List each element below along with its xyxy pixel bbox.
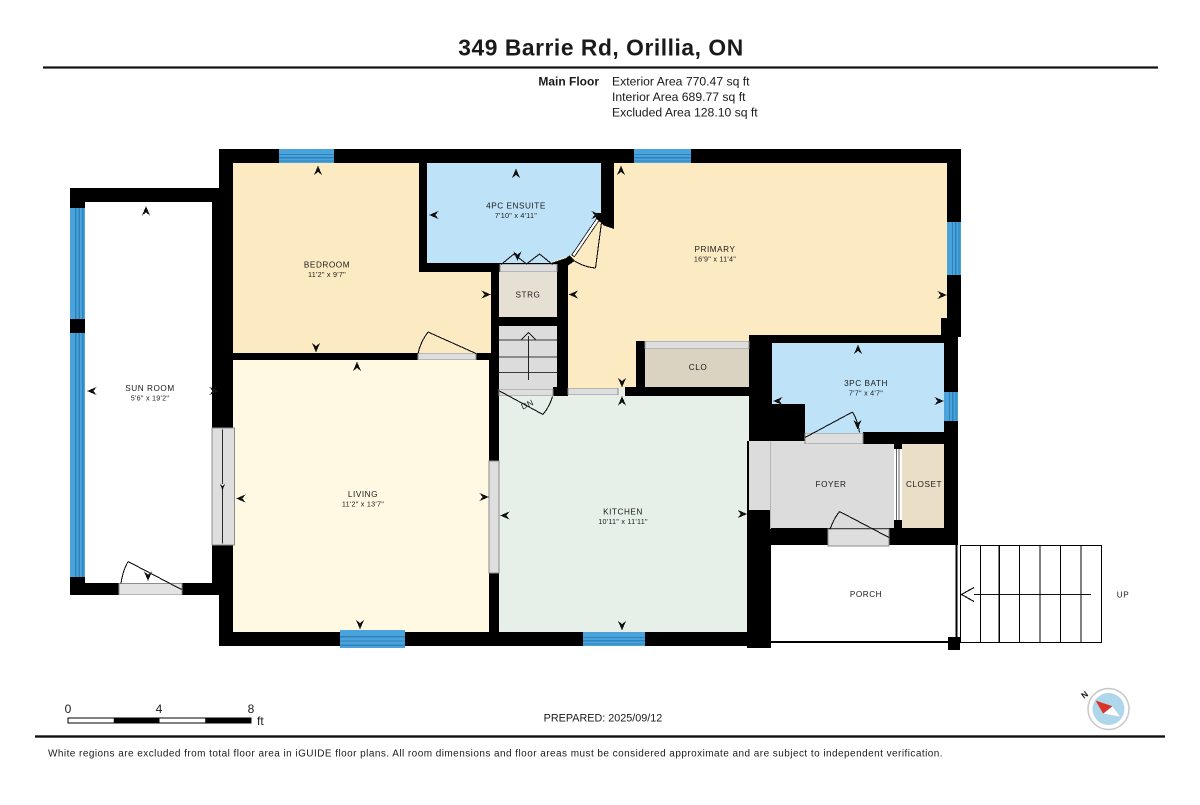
svg-text:16'9" x 11'4": 16'9" x 11'4" [694,255,736,264]
svg-text:LIVING: LIVING [348,490,378,499]
svg-text:Excluded Area 128.10 sq ft: Excluded Area 128.10 sq ft [612,105,758,119]
svg-text:BEDROOM: BEDROOM [304,260,350,269]
svg-text:10'11" x 11'11": 10'11" x 11'11" [598,517,648,526]
svg-text:7'10" x 4'11": 7'10" x 4'11" [495,211,537,220]
svg-text:ft: ft [257,714,264,728]
svg-text:Exterior Area 770.47 sq ft: Exterior Area 770.47 sq ft [612,74,750,88]
svg-text:N: N [1079,689,1090,701]
svg-text:Main Floor: Main Floor [538,74,599,88]
svg-text:4PC ENSUITE: 4PC ENSUITE [486,202,546,211]
svg-text:0: 0 [65,702,72,716]
svg-text:3PC BATH: 3PC BATH [844,379,888,388]
svg-text:4: 4 [156,702,163,716]
svg-text:5'6" x 19'2": 5'6" x 19'2" [131,394,170,403]
svg-text:STRG: STRG [516,291,541,300]
svg-text:White regions are excluded fro: White regions are excluded from total fl… [48,749,943,760]
svg-text:FOYER: FOYER [816,480,847,489]
svg-text:PORCH: PORCH [850,590,882,599]
svg-text:11'2" x 9'7": 11'2" x 9'7" [308,270,346,279]
svg-text:SUN ROOM: SUN ROOM [125,384,174,393]
svg-text:Interior Area 689.77 sq ft: Interior Area 689.77 sq ft [612,90,746,104]
svg-text:CLOSET: CLOSET [906,480,942,489]
svg-text:CLO: CLO [689,363,708,372]
svg-text:11'2" x 13'7": 11'2" x 13'7" [342,500,384,509]
svg-text:PREPARED: 2025/09/12: PREPARED: 2025/09/12 [544,713,663,725]
svg-text:7'7" x 4'7": 7'7" x 4'7" [849,389,883,398]
svg-text:349 Barrie Rd, Orillia, ON: 349 Barrie Rd, Orillia, ON [458,35,743,61]
svg-text:KITCHEN: KITCHEN [603,508,643,517]
svg-text:UP: UP [1117,591,1129,600]
svg-text:PRIMARY: PRIMARY [694,245,735,254]
svg-text:8: 8 [248,702,255,716]
